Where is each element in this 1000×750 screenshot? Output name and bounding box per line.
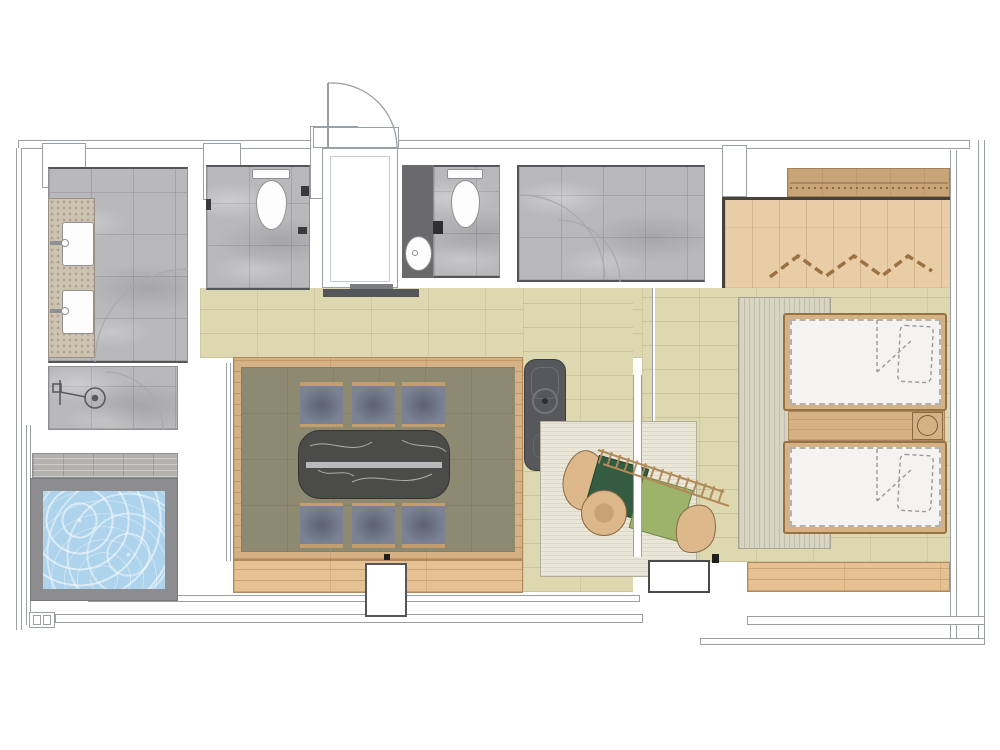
dining-chair [402,382,445,427]
wall-top-right [398,140,970,149]
lamp-icon [917,415,938,436]
dining-chair [402,503,445,548]
wall-dining-west [226,363,231,561]
table-runner [306,462,442,468]
floor-plan [0,0,1000,750]
wall-accessory [298,227,307,234]
dining-chair [352,382,395,427]
wardrobe-band [787,168,950,197]
corner-detail-cell [43,615,51,625]
bedroom-deck-strip [747,562,950,592]
window-column [365,563,407,617]
toilet-1-tank [252,169,290,179]
wall-left [16,148,22,630]
dining-chair [300,503,343,548]
wall-pilaster-bedroom [722,145,747,197]
wall-right-outer [978,140,985,645]
toilet-room-1-floor [206,165,310,290]
balcony-line-d [700,638,985,645]
fireplace-center-dot [542,398,548,404]
corner-detail-box [29,612,55,628]
wall-accessory [206,199,211,210]
faucet-icon [61,307,69,315]
pool-water [43,491,165,589]
partition-doorpost [648,560,710,593]
dining-chair [352,503,395,548]
wall-accessory [433,221,443,234]
wall-accessory [301,186,309,196]
bed-1-mattress [790,319,941,405]
balcony-line-b [55,614,643,623]
faucet-icon [61,239,69,247]
bed-2-mattress [790,447,941,527]
console-sideboard [323,289,419,297]
corner-detail-cell [33,615,41,625]
dining-chair [300,382,343,427]
entry-inner-outline [330,156,390,282]
shower-room-2-floor [517,165,705,282]
basin-drain-icon [412,250,418,256]
shower-room-1-floor [48,366,178,430]
entry-threshold [313,127,399,148]
round-pouf [581,490,627,536]
door-handle-dot [712,554,719,563]
console-shelf [350,284,393,289]
stone-threshold [32,453,178,478]
partition-wall [633,375,642,557]
toilet-2-basin [405,236,432,271]
toilet-2-tank [447,169,483,179]
bedroom-wood-floor [722,197,950,288]
wall-right-inner [950,150,957,642]
balcony-line-c [747,616,985,625]
